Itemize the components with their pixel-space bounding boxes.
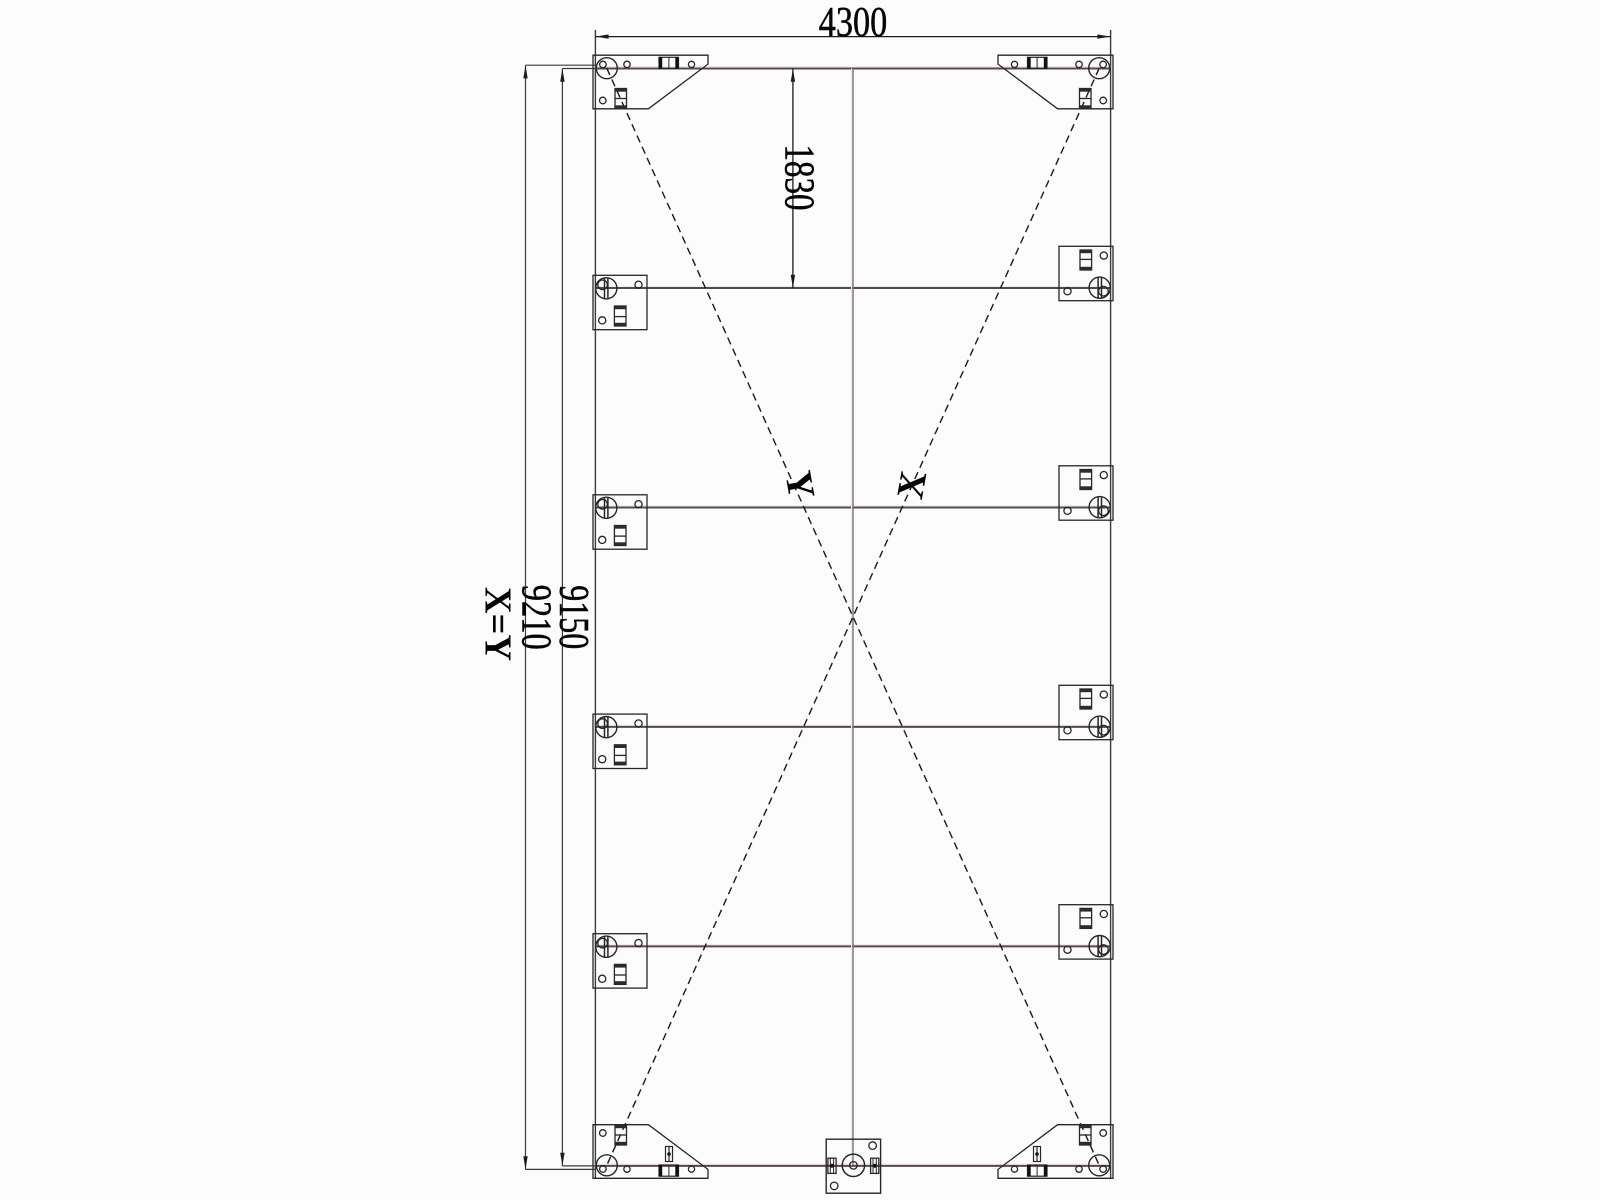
svg-text:1830: 1830 bbox=[776, 145, 822, 211]
svg-text:X=Y: X=Y bbox=[477, 587, 519, 661]
svg-text:4300: 4300 bbox=[819, 0, 888, 46]
